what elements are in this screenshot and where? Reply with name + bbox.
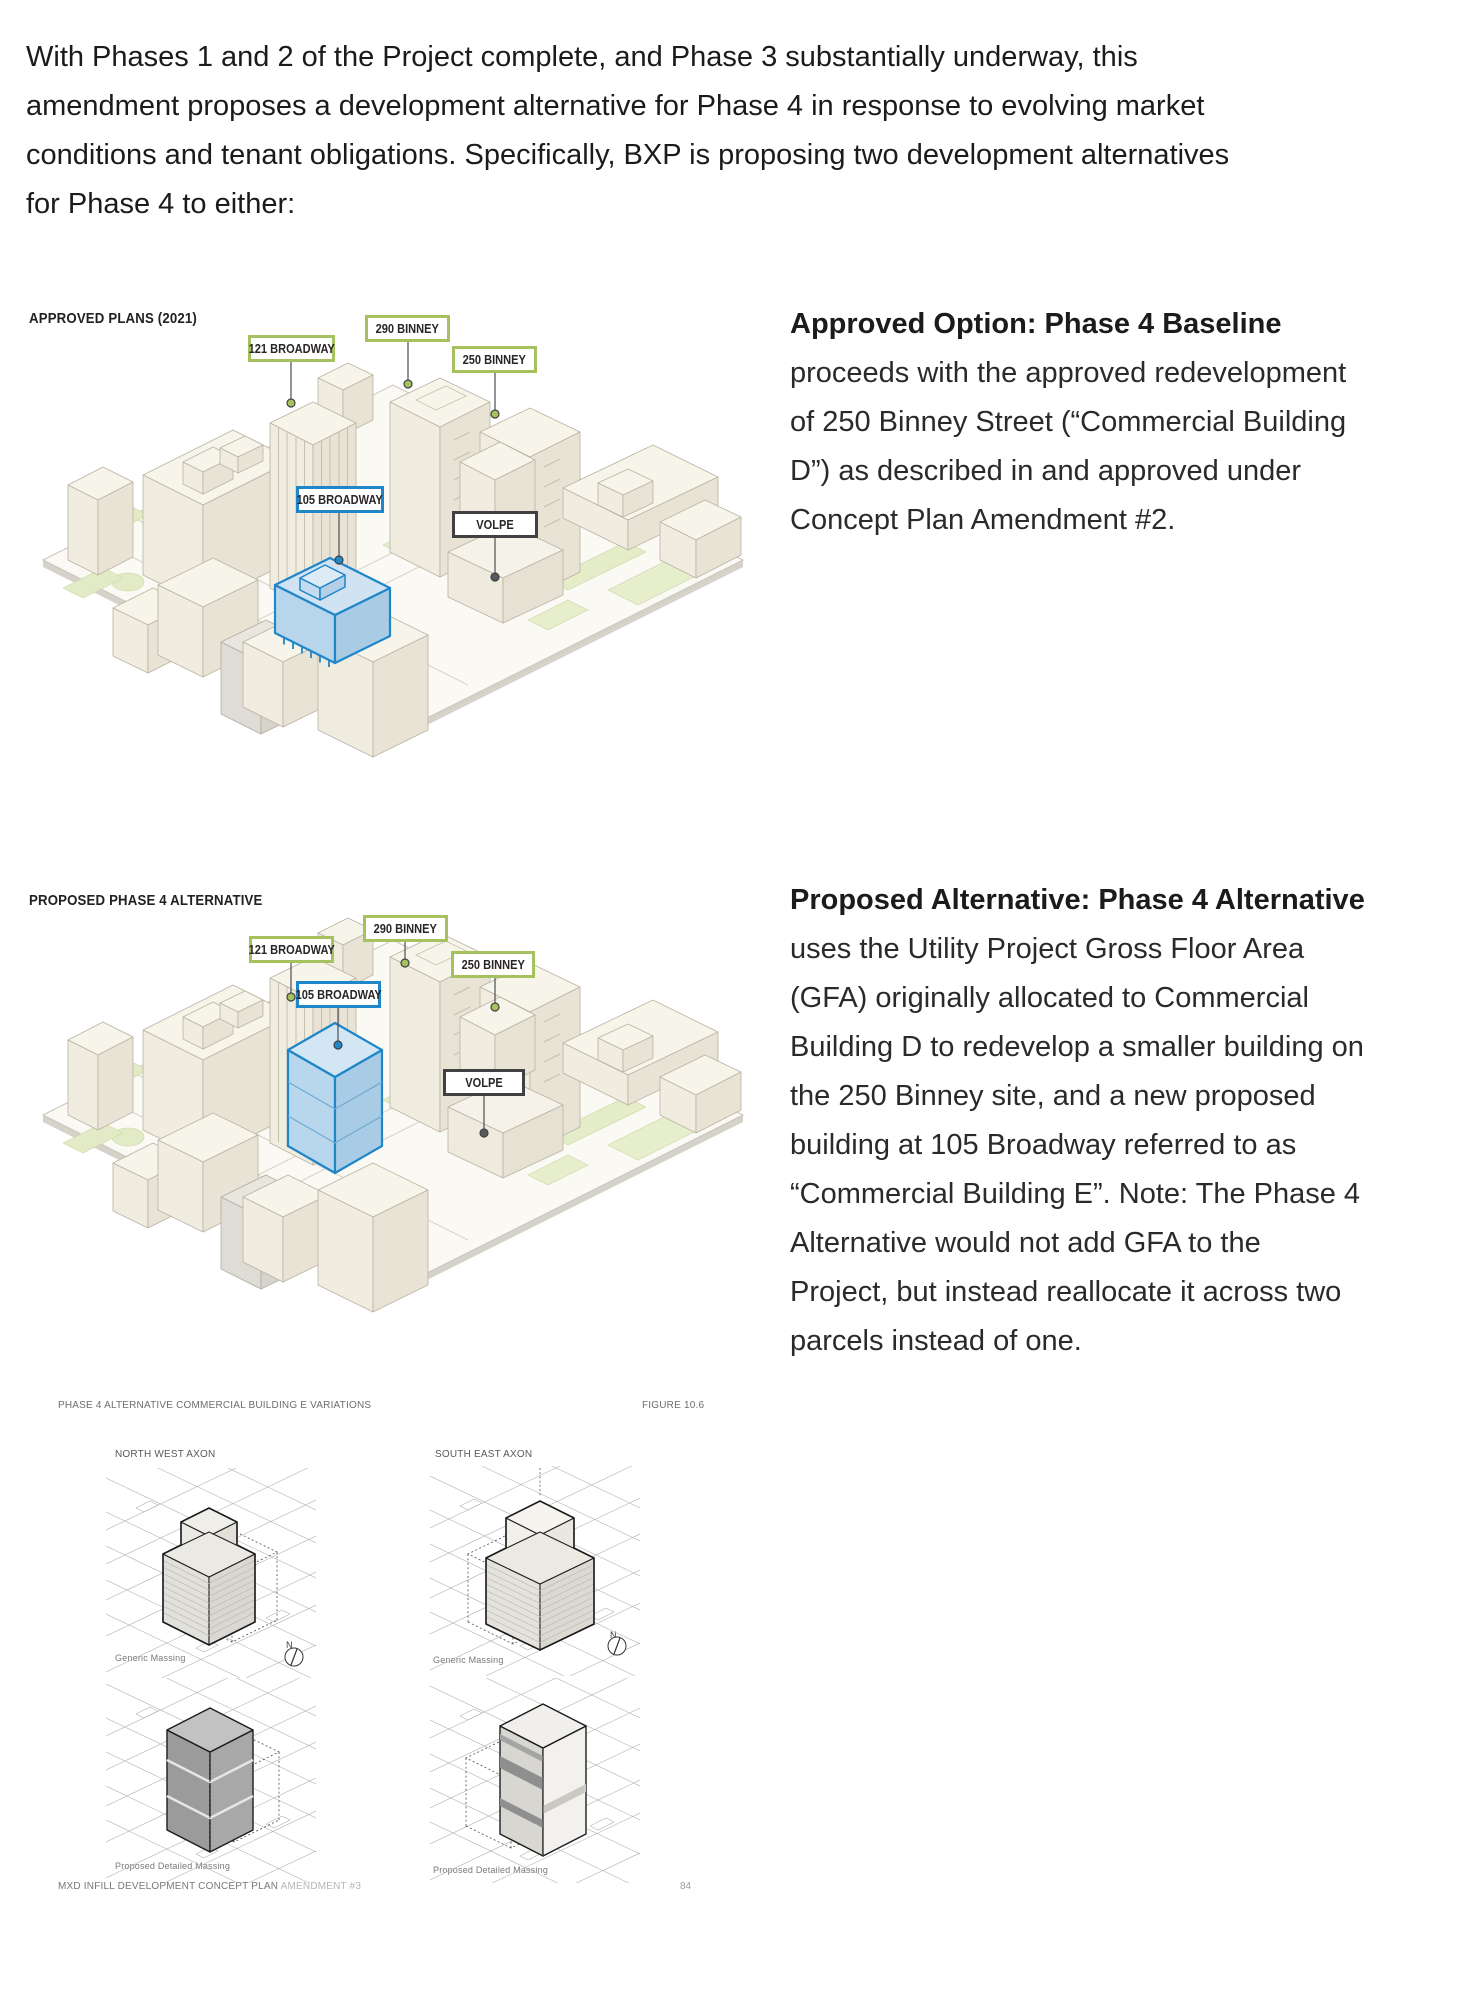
southeast-axon-label: SOUTH EAST AXON bbox=[435, 1449, 532, 1460]
approved-isometric-diagram bbox=[8, 290, 768, 790]
proposed-label-250-binney: 250 BINNEY bbox=[451, 951, 535, 978]
se-detailed-axon-drawing bbox=[428, 1678, 643, 1883]
figure-number: FIGURE 10.6 bbox=[642, 1400, 704, 1411]
approved-label-290-binney: 290 BINNEY bbox=[365, 315, 450, 342]
northwest-axon-label: NORTH WEST AXON bbox=[115, 1449, 215, 1460]
approved-description-body: proceeds with the approved redevelopment… bbox=[790, 357, 1346, 536]
figure-title: PHASE 4 ALTERNATIVE COMMERCIAL BUILDING … bbox=[58, 1400, 371, 1411]
nw-detailed-axon-drawing bbox=[105, 1678, 317, 1883]
page-number: 84 bbox=[680, 1881, 691, 1892]
nw-generic-axon-drawing bbox=[105, 1466, 317, 1680]
approved-description-heading: Approved Option: Phase 4 Baseline bbox=[790, 300, 1475, 349]
north-arrow-icon bbox=[285, 1648, 303, 1666]
proposed-label-105-broadway: 105 BROADWAY bbox=[296, 981, 381, 1008]
intro-paragraph: With Phases 1 and 2 of the Project compl… bbox=[26, 33, 1446, 229]
approved-label-volpe: VOLPE bbox=[452, 511, 538, 538]
proposed-description-heading: Proposed Alternative: Phase 4 Alternativ… bbox=[790, 876, 1475, 925]
se-generic-axon-drawing bbox=[428, 1466, 643, 1681]
proposed-description-body: uses the Utility Project Gross Floor Are… bbox=[790, 933, 1364, 1357]
approved-label-121-broadway: 121 BROADWAY bbox=[248, 335, 335, 362]
proposed-label-volpe: VOLPE bbox=[443, 1069, 525, 1096]
proposed-label-121-broadway: 121 BROADWAY bbox=[249, 936, 334, 963]
approved-description: Approved Option: Phase 4 Baselineproceed… bbox=[790, 300, 1475, 545]
approved-label-105-broadway: 105 BROADWAY bbox=[296, 486, 384, 513]
approved-label-250-binney: 250 BINNEY bbox=[452, 346, 537, 373]
document-page: With Phases 1 and 2 of the Project compl… bbox=[0, 0, 1475, 2000]
proposed-label-290-binney: 290 BINNEY bbox=[363, 915, 448, 942]
proposed-description: Proposed Alternative: Phase 4 Alternativ… bbox=[790, 876, 1475, 1366]
north-arrow-icon bbox=[608, 1637, 626, 1655]
